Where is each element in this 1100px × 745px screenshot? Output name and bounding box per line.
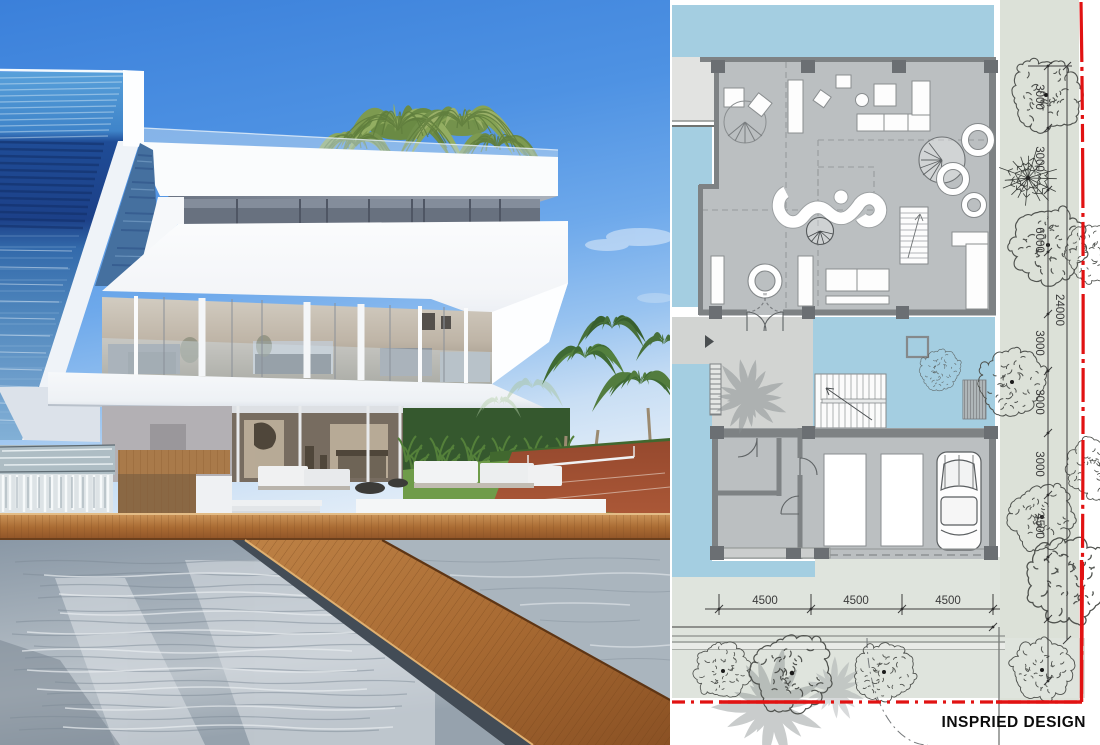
svg-text:4500: 4500	[843, 595, 869, 607]
svg-text:3000: 3000	[1033, 330, 1045, 356]
svg-text:4500: 4500	[1033, 513, 1045, 539]
svg-text:24000: 24000	[1053, 294, 1065, 326]
svg-text:3000: 3000	[1033, 84, 1045, 110]
svg-text:4500: 4500	[935, 595, 961, 607]
svg-text:3000: 3000	[1033, 146, 1045, 172]
svg-text:6000: 6000	[1033, 227, 1045, 253]
svg-text:INSPRIED DESIGN: INSPRIED DESIGN	[942, 714, 1086, 731]
svg-text:3000: 3000	[1033, 389, 1045, 415]
svg-text:4500: 4500	[752, 595, 778, 607]
svg-text:3000: 3000	[1033, 451, 1045, 477]
